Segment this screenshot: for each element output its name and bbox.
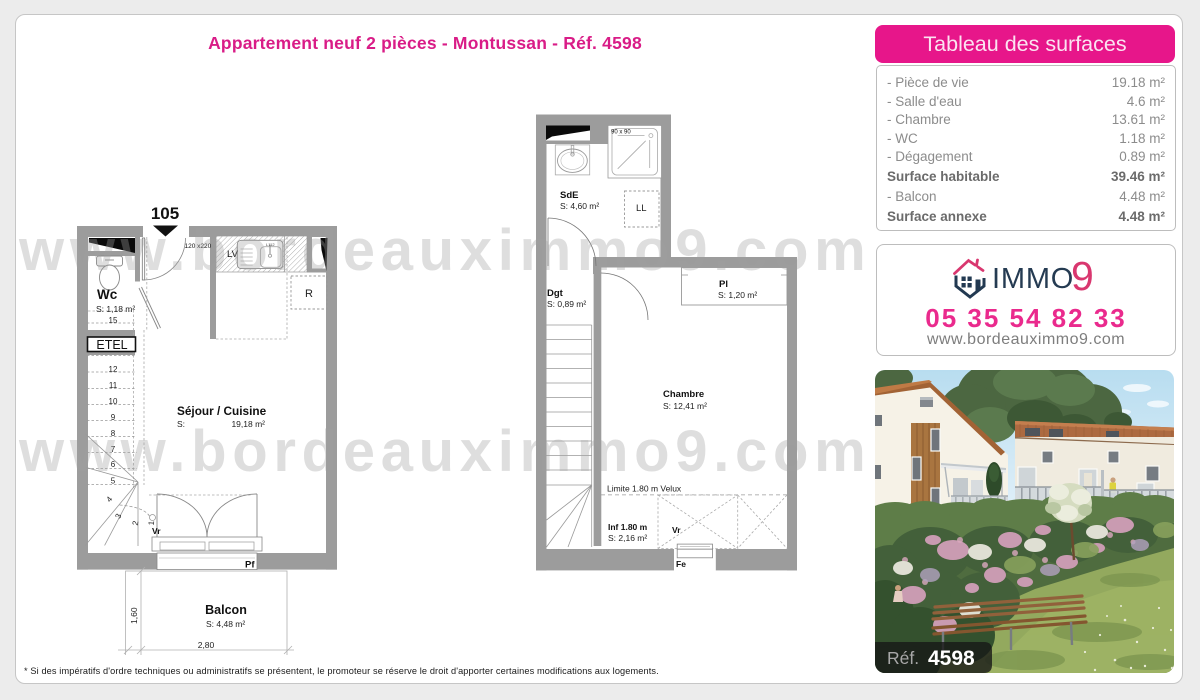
svg-text:12: 12 [109, 365, 118, 374]
svg-text:S: 4,48 m²: S: 4,48 m² [206, 619, 245, 629]
svg-text:105: 105 [151, 204, 179, 223]
svg-text:1,60: 1,60 [129, 607, 139, 624]
svg-text:R: R [305, 288, 313, 300]
svg-text:S:: S: [177, 419, 185, 429]
svg-text:10: 10 [109, 397, 118, 406]
svg-text:4: 4 [105, 494, 115, 504]
svg-text:5: 5 [111, 477, 116, 486]
svg-text:2,80: 2,80 [198, 640, 215, 650]
svg-text:Pf: Pf [245, 560, 255, 571]
svg-text:3: 3 [113, 512, 123, 520]
svg-text:2: 2 [131, 520, 141, 526]
svg-text:Séjour / Cuisine: Séjour / Cuisine [177, 404, 267, 418]
svg-text:S: 1,18 m²: S: 1,18 m² [96, 304, 135, 314]
svg-text:9: 9 [111, 413, 116, 422]
svg-text:Limite 1.80 m Velux: Limite 1.80 m Velux [607, 484, 682, 494]
svg-text:L112: L112 [266, 242, 275, 247]
svg-text:S: 0,89 m²: S: 0,89 m² [547, 299, 586, 309]
svg-text:7: 7 [111, 445, 116, 454]
svg-text:S: 2,16 m²: S: 2,16 m² [608, 533, 647, 543]
svg-text:Chambre: Chambre [663, 389, 704, 400]
svg-text:Réf.: Réf. [887, 648, 919, 668]
svg-text:15: 15 [109, 316, 118, 325]
svg-text:Pl: Pl [719, 279, 728, 290]
svg-text:Inf 1.80 m: Inf 1.80 m [608, 522, 648, 532]
svg-text:19,18 m²: 19,18 m² [231, 419, 265, 429]
svg-text:LL: LL [636, 203, 647, 214]
svg-text:120 x220: 120 x220 [185, 243, 212, 250]
svg-text:S: 1,20 m²: S: 1,20 m² [718, 290, 757, 300]
svg-text:90 x 90: 90 x 90 [611, 130, 631, 136]
svg-text:4598: 4598 [928, 647, 975, 670]
svg-text:11: 11 [109, 381, 118, 390]
svg-text:8: 8 [111, 429, 116, 438]
svg-text:S: 4,60 m²: S: 4,60 m² [560, 201, 599, 211]
svg-text:Dgt: Dgt [547, 288, 564, 299]
svg-text:Vr: Vr [672, 525, 681, 535]
svg-text:ETEL: ETEL [96, 338, 127, 352]
svg-text:Balcon: Balcon [205, 603, 247, 617]
svg-text:6: 6 [111, 460, 116, 469]
svg-text:S: 12,41 m²: S: 12,41 m² [663, 401, 707, 411]
svg-text:Fe: Fe [676, 559, 686, 569]
svg-text:SdE: SdE [560, 190, 578, 201]
svg-text:LV: LV [227, 249, 239, 260]
svg-text:Wc: Wc [97, 287, 118, 302]
svg-text:IMMO: IMMO [992, 263, 1074, 295]
svg-text:9: 9 [1071, 255, 1094, 299]
svg-text:Vr: Vr [152, 526, 161, 536]
